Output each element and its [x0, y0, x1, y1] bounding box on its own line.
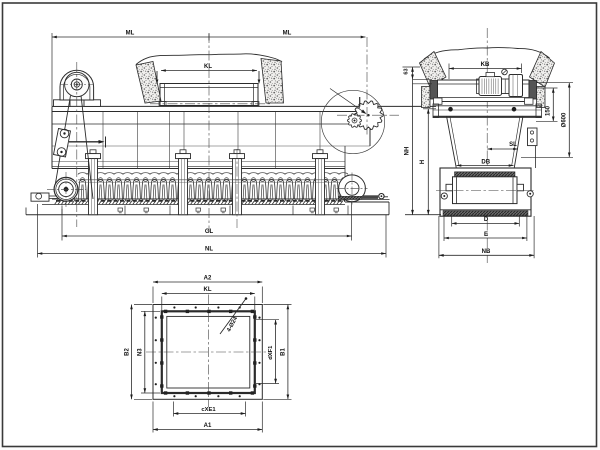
svg-text:NL: NL — [205, 247, 213, 253]
svg-text:SL: SL — [509, 142, 517, 148]
svg-text:KL: KL — [204, 64, 212, 70]
svg-text:B2: B2 — [125, 348, 131, 356]
svg-text:NB: NB — [482, 249, 491, 255]
svg-text:63: 63 — [404, 68, 410, 74]
svg-text:B1: B1 — [281, 348, 287, 356]
svg-text:cXE1: cXE1 — [201, 407, 216, 413]
svg-text:GL: GL — [205, 229, 214, 235]
svg-text:150: 150 — [546, 105, 552, 116]
svg-text:E: E — [484, 232, 488, 238]
svg-text:dXF1: dXF1 — [268, 345, 274, 360]
svg-text:KB: KB — [481, 62, 490, 68]
svg-text:ML: ML — [126, 31, 135, 37]
svg-text:A1: A1 — [204, 423, 212, 429]
svg-text:NH: NH — [405, 147, 411, 156]
svg-text:N3: N3 — [138, 348, 144, 356]
svg-text:A2: A2 — [204, 276, 212, 282]
svg-text:D: D — [484, 217, 489, 223]
svg-text:H: H — [420, 160, 426, 164]
svg-text:ML: ML — [283, 31, 292, 37]
svg-text:DB: DB — [481, 159, 490, 165]
svg-text:KL: KL — [204, 287, 212, 293]
svg-text:Ø600: Ø600 — [562, 112, 568, 127]
